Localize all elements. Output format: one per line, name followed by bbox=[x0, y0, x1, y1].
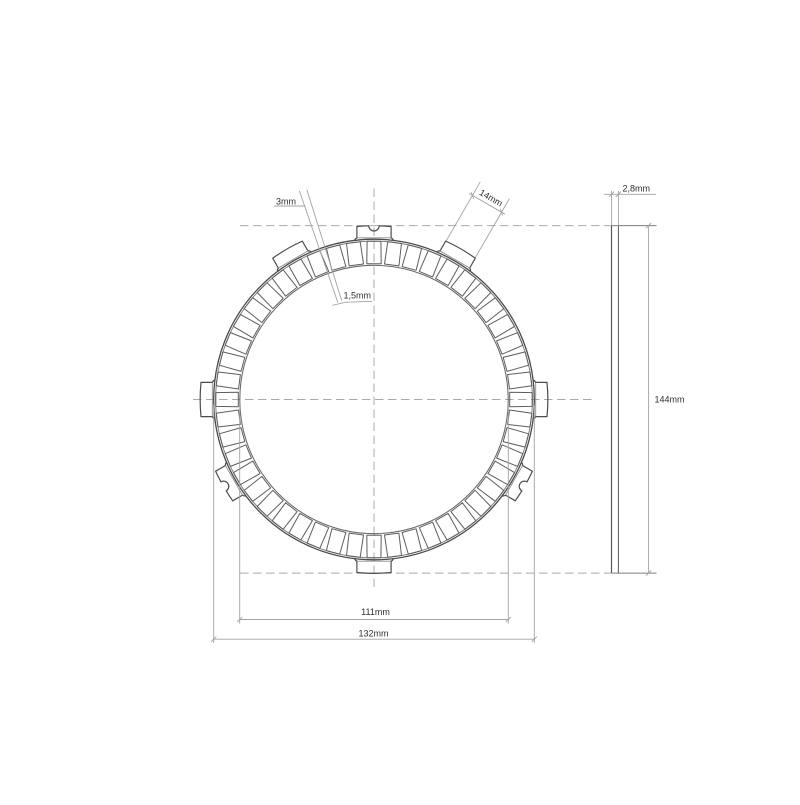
svg-text:144mm: 144mm bbox=[655, 395, 685, 405]
svg-text:2,8mm: 2,8mm bbox=[623, 184, 651, 194]
svg-text:1,5mm: 1,5mm bbox=[344, 291, 372, 301]
svg-text:3mm: 3mm bbox=[276, 197, 296, 207]
svg-text:111mm: 111mm bbox=[361, 607, 390, 617]
svg-text:132mm: 132mm bbox=[358, 629, 388, 639]
